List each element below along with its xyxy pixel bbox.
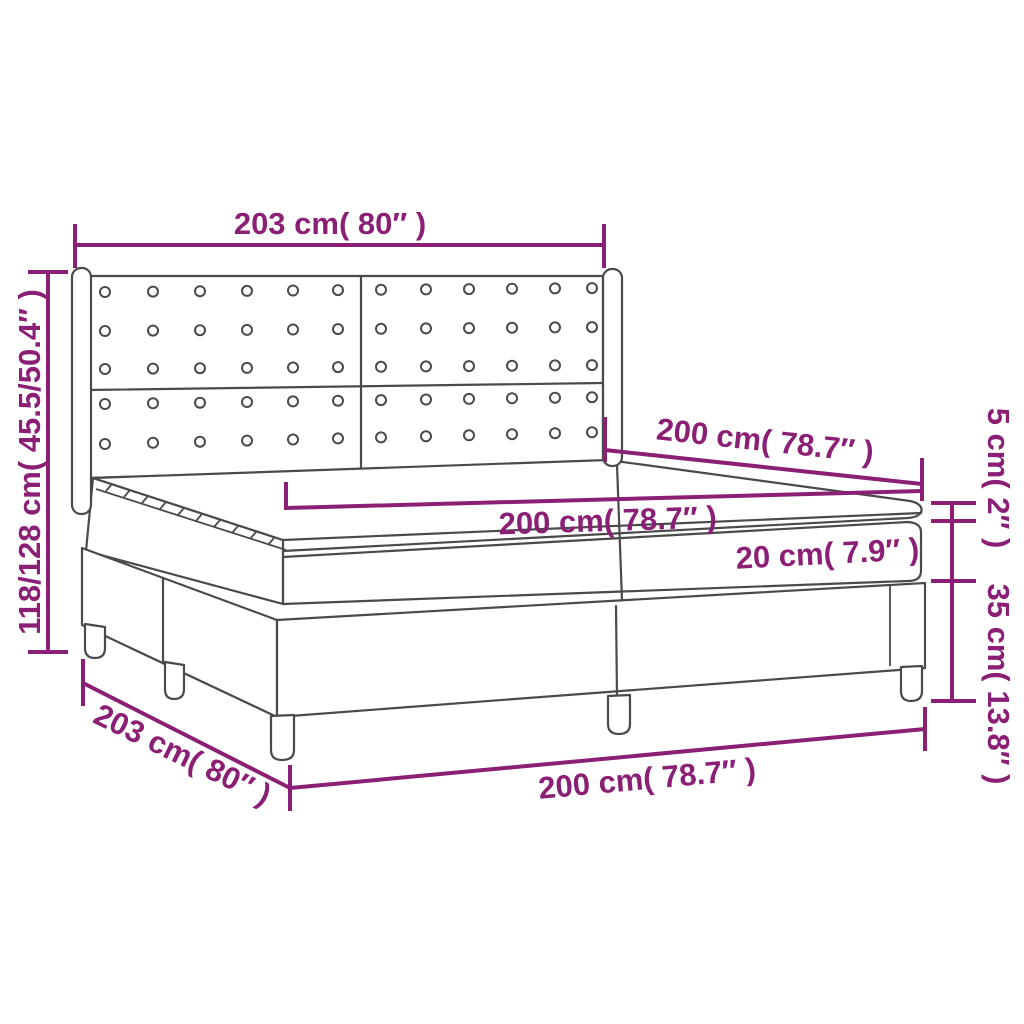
tufting-button — [376, 362, 386, 372]
tufting-button — [100, 326, 110, 336]
tufting-button — [587, 322, 597, 332]
diagram-canvas: 203 cm( 80″ ) 118/128 cm( 45.5/50.4″ ) 2… — [0, 0, 1024, 1024]
tufting-button — [242, 436, 252, 446]
dim-bed-length-label: 203 cm( 80″ ) — [88, 697, 276, 813]
tufting-button — [376, 285, 386, 295]
bed-leg-front-right — [901, 666, 922, 701]
tufting-button — [100, 287, 110, 297]
tufting-button — [148, 326, 158, 336]
bed-leg-mid-left — [165, 662, 184, 699]
tufting-button — [333, 324, 343, 334]
tufting-button — [100, 399, 110, 409]
dim-bed-height: 118/128 cm( 45.5/50.4″ ) — [12, 272, 68, 652]
dim-right-stack: 5 cm( 2″ ) 35 cm( 13.8″ ) — [931, 408, 1016, 785]
tufting-button — [100, 364, 110, 374]
tufting-button — [464, 323, 474, 333]
tufting-button — [421, 431, 431, 441]
tufting-button — [421, 284, 431, 294]
tufting-button — [242, 286, 252, 296]
tufting-button — [376, 324, 386, 334]
tufting-button — [421, 323, 431, 333]
tufting-button — [550, 428, 560, 438]
tufting-button — [507, 323, 517, 333]
tufting-button — [148, 364, 158, 374]
bed-leg-front-middle — [608, 695, 630, 734]
tufting-button — [464, 284, 474, 294]
tufting-button — [421, 395, 431, 405]
tufting-button — [587, 360, 597, 370]
tufting-button — [195, 398, 205, 408]
base-front-face — [277, 583, 925, 717]
tufting-button — [195, 437, 205, 447]
dim-bed-width-label: 200 cm( 78.7″ ) — [537, 751, 757, 806]
dim-bed-height-label: 118/128 cm( 45.5/50.4″ ) — [12, 289, 47, 635]
tufting-button — [376, 432, 386, 442]
tufting-button — [507, 429, 517, 439]
tufting-button — [242, 325, 252, 335]
bed-leg-back-left — [85, 624, 105, 658]
tufting-button — [464, 361, 474, 371]
tufting-button — [464, 430, 474, 440]
tufting-button — [507, 393, 517, 403]
bed-leg-front-left — [271, 715, 294, 760]
tufting-button — [195, 325, 205, 335]
tufting-button — [242, 397, 252, 407]
dim-mattress-width-label: 200 cm( 78.7″ ) — [498, 500, 717, 542]
dim-right-stack-line — [931, 503, 976, 701]
headboard-left-wing — [72, 268, 91, 514]
tufting-button — [288, 286, 298, 296]
tufting-button — [550, 360, 560, 370]
tufting-button — [288, 435, 298, 445]
tufting-button — [507, 284, 517, 294]
tufting-button — [148, 398, 158, 408]
tufting-button — [333, 285, 343, 295]
tufting-button — [376, 395, 386, 405]
tufting-button — [464, 394, 474, 404]
tufting-button — [550, 322, 560, 332]
tufting-button — [333, 396, 343, 406]
tufting-button — [550, 283, 560, 293]
tufting-button — [587, 427, 597, 437]
tufting-button — [421, 361, 431, 371]
tufting-button — [587, 392, 597, 402]
tufting-button — [507, 361, 517, 371]
tufting-button — [333, 362, 343, 372]
dim-headboard-width-label: 203 cm( 80″ ) — [234, 206, 426, 241]
tufting-button — [288, 325, 298, 335]
tufting-button — [333, 433, 343, 443]
tufting-button — [100, 439, 110, 449]
tufting-button — [148, 287, 158, 297]
dim-base-height-label: 35 cm( 13.8″ ) — [981, 584, 1016, 785]
bed-dimension-diagram: 203 cm( 80″ ) 118/128 cm( 45.5/50.4″ ) 2… — [0, 0, 1024, 1024]
tufting-button — [195, 363, 205, 373]
dim-mattress-length-label: 200 cm( 78.7″ ) — [655, 411, 876, 469]
tufting-button — [288, 396, 298, 406]
base-front-seam — [616, 606, 617, 697]
tufting-button — [242, 363, 252, 373]
tufting-button — [148, 438, 158, 448]
headboard-face — [88, 276, 603, 478]
tufting-button — [288, 363, 298, 373]
tufting-button — [587, 283, 597, 293]
tufting-button — [195, 286, 205, 296]
dim-headboard-width: 203 cm( 80″ ) — [75, 206, 604, 268]
tufting-button — [550, 393, 560, 403]
dim-topper-thickness-label: 5 cm( 2″ ) — [981, 408, 1016, 549]
